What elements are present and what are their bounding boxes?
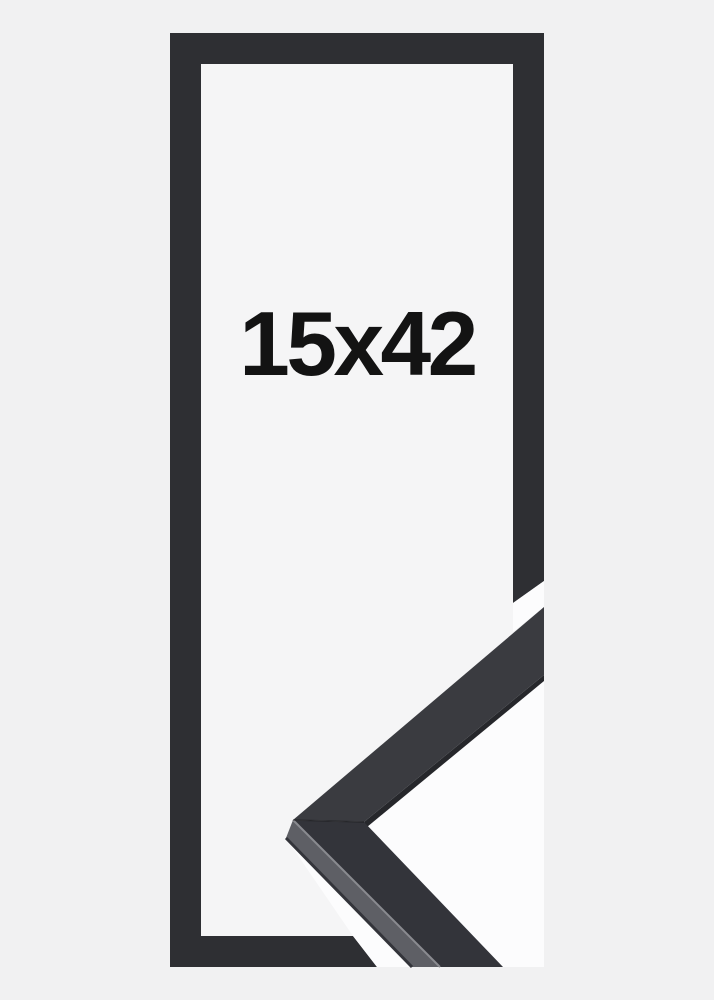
product-photo: 15x42 — [0, 0, 714, 1000]
frame-top-bar — [170, 33, 544, 64]
frame-illustration — [0, 0, 714, 1000]
size-label: 15x42 — [170, 299, 544, 390]
frame-left-bar — [170, 33, 201, 967]
frame-bottom-bar — [170, 936, 377, 967]
